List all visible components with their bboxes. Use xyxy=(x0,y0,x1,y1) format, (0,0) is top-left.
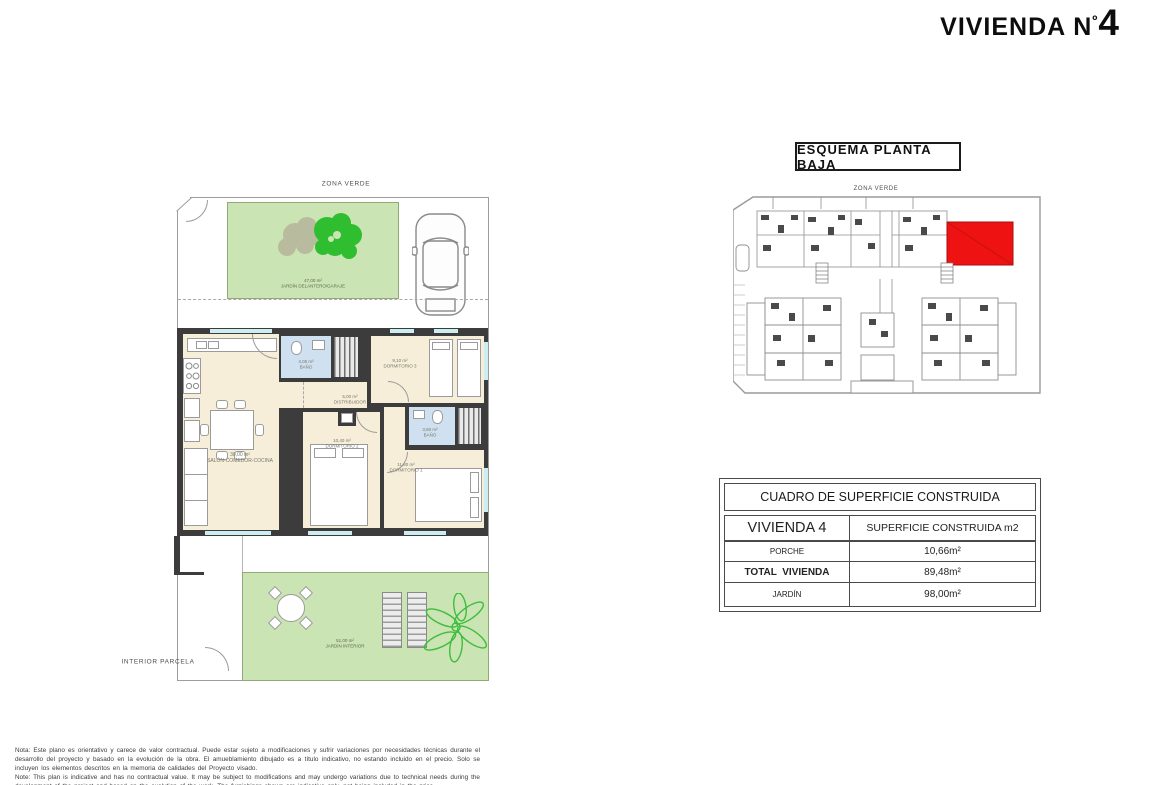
window-dorm3-top2 xyxy=(434,329,458,333)
palm-tree-icon xyxy=(420,593,488,663)
title-text: VIVIENDA N xyxy=(940,13,1092,41)
dashed-boundary-line xyxy=(178,299,488,300)
sink-icon xyxy=(312,340,325,350)
window-dorm1-right xyxy=(484,468,488,512)
window-salon-top xyxy=(210,329,272,333)
window-salon-bottom xyxy=(205,531,271,535)
pillow-icon xyxy=(314,448,336,458)
site-car-icon xyxy=(736,245,749,271)
interior-garden-name: JARDÍN INTERIOR xyxy=(291,644,399,649)
site-plan-title-box: ESQUEMA PLANTA BAJA xyxy=(795,142,961,171)
label-distribuidor: 5,00 m²DISTRIBUIDOR xyxy=(296,395,404,406)
car-icon xyxy=(412,211,469,319)
tree-icon xyxy=(265,205,375,275)
sink-icon xyxy=(413,410,425,419)
pillow-icon xyxy=(470,497,479,518)
title-number: 4 xyxy=(1098,2,1120,43)
label-salon: 30,00 m²SALÓN-COMEDOR-COCINA xyxy=(180,452,300,464)
zona-verde-label-main: ZONA VERDE xyxy=(268,180,424,188)
window-dorm3-right xyxy=(484,342,488,380)
wall-stub-vertical xyxy=(174,536,180,574)
fridge-icon xyxy=(184,398,200,418)
pillow-icon xyxy=(470,472,479,493)
kitchen-sink-icon xyxy=(196,341,207,349)
plan-sheet: VIVIENDA Nº4 ZONA VERDE 47,00 m² JARDÍN … xyxy=(0,0,1170,785)
row-value: 98,00m² xyxy=(850,589,1035,600)
table-row: JARDÍN 98,00m² xyxy=(725,583,1035,606)
stove-icon xyxy=(183,358,201,394)
garden-table xyxy=(277,594,305,622)
page-title: VIVIENDA Nº4 xyxy=(930,2,1120,44)
chair-icon xyxy=(200,424,209,436)
toilet-icon xyxy=(432,410,443,424)
sofa-cushion-line xyxy=(185,500,207,501)
label-dorm2: 10,40 m²DORMITORIO 2 xyxy=(288,439,396,450)
dining-table xyxy=(210,410,254,450)
window-dorm1-bottom xyxy=(404,531,446,535)
toilet-icon xyxy=(291,341,302,355)
site-plan-drawing xyxy=(733,195,1043,395)
wall-stub-horizontal xyxy=(174,572,204,575)
pillow-icon xyxy=(432,342,450,350)
chair-icon xyxy=(255,424,264,436)
window-dorm2-bottom xyxy=(308,531,352,535)
chair-icon xyxy=(216,400,228,409)
interior-parcela-label-main: INTERIOR PARCELA xyxy=(80,658,236,666)
label-bath1: 4,05 m²BAÑO xyxy=(252,360,360,371)
label-dorm1: 11,80 m²DORMITORIO 1 xyxy=(352,463,460,474)
row-label: JARDÍN xyxy=(725,583,850,606)
row-value: 89,48m² xyxy=(850,567,1035,578)
row-label: TOTAL VIVIENDA xyxy=(725,562,850,582)
sofa-cushion-line xyxy=(185,474,207,475)
shower2 xyxy=(457,407,482,445)
shower1 xyxy=(333,336,359,378)
wardrobe-inner xyxy=(341,413,353,423)
kitchen-sink2-icon xyxy=(208,341,219,349)
label-bath2: 3,60 m²BAÑO xyxy=(376,428,484,439)
window-dorm3-top1 xyxy=(390,329,414,333)
table-row: PORCHE 10,66m² xyxy=(725,542,1035,562)
chair-icon xyxy=(234,400,246,409)
surface-table-title: CUADRO DE SUPERFICIE CONSTRUIDA xyxy=(724,483,1036,511)
surface-table: CUADRO DE SUPERFICIE CONSTRUIDA VIVIENDA… xyxy=(719,478,1041,612)
zona-verde-label-site: ZONA VERDE xyxy=(804,185,948,192)
interior-garden-label: 51,00 m² JARDÍN INTERIOR xyxy=(291,639,399,650)
note-spanish: Nota: Este plano es orientativo y carece… xyxy=(15,747,480,773)
table-header-row: VIVIENDA 4 SUPERFICIE CONSTRUIDA m2 xyxy=(725,516,1035,542)
row-value: 10,66m² xyxy=(850,546,1035,557)
pillow-icon xyxy=(460,342,478,350)
note-english: Note: This plan is indicative and has no… xyxy=(15,774,480,785)
pillow-icon xyxy=(342,448,364,458)
porch-edge-line xyxy=(242,536,243,572)
table-row: TOTAL VIVIENDA 89,48m² xyxy=(725,562,1035,583)
site-plan-title: ESQUEMA PLANTA BAJA xyxy=(797,142,959,172)
label-dorm3: 9,10 m²DORMITORIO 3 xyxy=(346,359,454,370)
cabinet-icon xyxy=(184,420,200,442)
surface-table-body: VIVIENDA 4 SUPERFICIE CONSTRUIDA m2 PORC… xyxy=(724,515,1036,607)
front-garden-label: 47,00 m² JARDÍN DELANTERO/GARAJE xyxy=(259,279,367,290)
row-label: PORCHE xyxy=(725,542,850,561)
col1-header: VIVIENDA 4 xyxy=(725,516,850,540)
front-garden-name: JARDÍN DELANTERO/GARAJE xyxy=(259,284,367,289)
col2-header: SUPERFICIE CONSTRUIDA m2 xyxy=(850,522,1035,534)
